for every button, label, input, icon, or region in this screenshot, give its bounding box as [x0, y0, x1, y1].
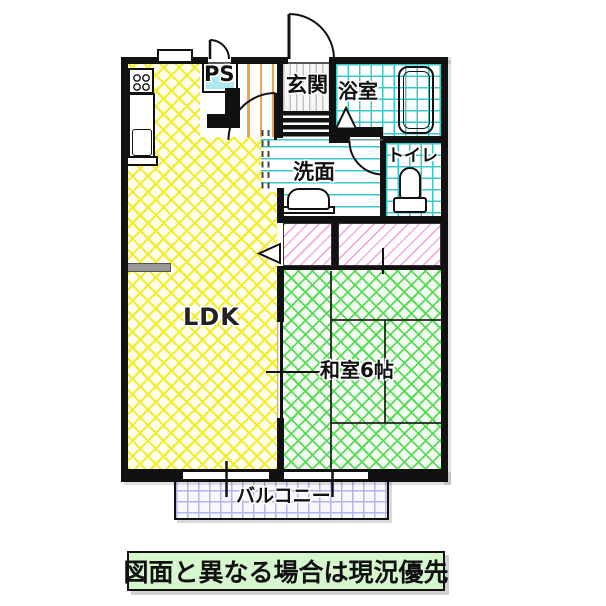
- washbasin-bowl: [287, 188, 330, 210]
- floor-plan-page: PS 玄関 浴室 トイレ 洗面 LDK 和室6帖 バルコニー 図面と異なる場合は…: [0, 0, 606, 606]
- label-washroom: 洗面: [293, 161, 335, 183]
- wall-washroom-toilet: [380, 137, 386, 223]
- ldk-counter-bar: [127, 263, 171, 272]
- washroom-floor-extension: [261, 137, 277, 192]
- disclaimer-note-box: 図面と異なる場合は現況優先: [127, 551, 445, 591]
- bathtub: [398, 66, 434, 134]
- shoe-cabinet-block-2: [207, 114, 240, 128]
- wall-left: [121, 57, 128, 482]
- ldk-balcony-window: [183, 470, 269, 481]
- closet-left: [283, 223, 332, 266]
- label-bath: 浴室: [338, 81, 378, 102]
- label-ldk: LDK: [183, 305, 240, 330]
- bathtub-inner-line: [403, 71, 430, 129]
- label-ps: PS: [204, 63, 235, 85]
- wall-washroom-door-jamb: [330, 136, 350, 143]
- toilet-tank: [393, 197, 427, 213]
- closet-right: [338, 223, 441, 266]
- kitchen-ledge: [126, 156, 158, 166]
- entry-hall-floor: [240, 64, 277, 137]
- kitchen-sink: [132, 129, 152, 156]
- label-balcony: バルコニー: [236, 487, 331, 507]
- genkan-step-lines: [283, 111, 330, 137]
- wall-washroom-bottom: [277, 216, 448, 223]
- wall-right: [441, 57, 448, 482]
- top-wall-window: [157, 49, 193, 63]
- wall-hall-genkan: [277, 57, 283, 138]
- label-toilet: トイレ: [387, 148, 438, 166]
- wall-closet-divider: [332, 223, 338, 266]
- stove-unit: [128, 68, 154, 94]
- wall-toilet-top: [383, 136, 448, 143]
- wall-closet-bottom: [277, 266, 441, 270]
- toilet-bowl: [399, 167, 421, 200]
- wall-ldk-washitsu-upper: [277, 266, 284, 322]
- label-genkan: 玄関: [286, 74, 328, 96]
- washitsu-balcony-window: [284, 470, 368, 481]
- label-washitsu: 和室6帖: [320, 360, 394, 381]
- disclaimer-note-text: 図面と異なる場合は現況優先: [124, 553, 449, 589]
- entrance-door-arc-icon: [289, 14, 334, 59]
- wall-washroom-stub: [277, 188, 284, 223]
- wall-ldk-washitsu-lower: [277, 418, 284, 470]
